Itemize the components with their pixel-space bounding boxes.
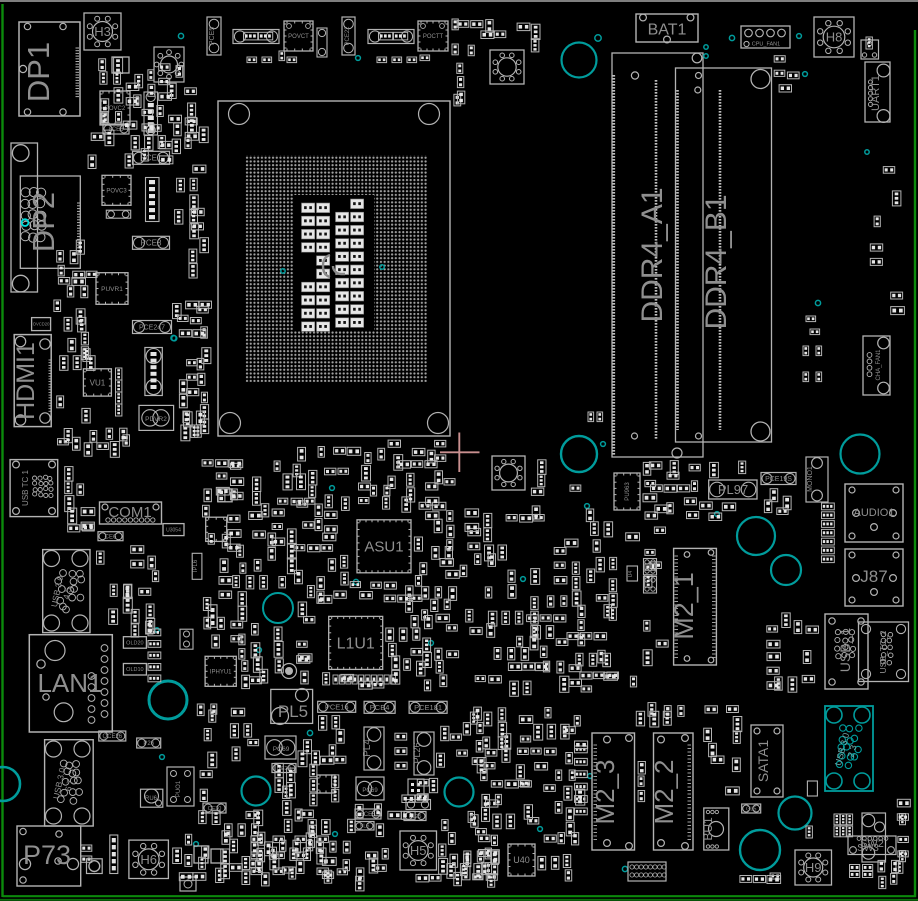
svg-text:H5: H5 xyxy=(410,843,427,858)
svg-text:M2_1: M2_1 xyxy=(669,572,699,640)
svg-text:AUDIO1: AUDIO1 xyxy=(854,507,895,519)
svg-text:USB_TC_2: USB_TC_2 xyxy=(878,630,888,673)
svg-text:PCE8: PCE8 xyxy=(141,239,162,248)
svg-text:VU1: VU1 xyxy=(90,378,106,387)
svg-text:PL97: PL97 xyxy=(718,482,748,497)
svg-text:L1U1: L1U1 xyxy=(337,636,375,653)
svg-text:COM1: COM1 xyxy=(108,504,151,521)
svg-text:PL26: PL26 xyxy=(412,742,422,763)
svg-text:PQ69: PQ69 xyxy=(362,788,378,794)
svg-text:PL5: PL5 xyxy=(278,702,308,721)
svg-text:CE6: CE6 xyxy=(105,534,117,540)
svg-text:H3: H3 xyxy=(94,24,111,39)
svg-text:H6: H6 xyxy=(140,852,157,867)
svg-text:DP2: DP2 xyxy=(26,192,61,252)
svg-text:PDVR2: PDVR2 xyxy=(145,416,167,423)
svg-text:USB_1: USB_1 xyxy=(837,628,853,673)
svg-text:DP1: DP1 xyxy=(21,42,56,102)
svg-text:HDMI1: HDMI1 xyxy=(12,342,40,420)
svg-text:PU963: PU963 xyxy=(625,482,631,501)
svg-text:U4: U4 xyxy=(628,571,634,578)
svg-text:PL4: PL4 xyxy=(362,739,373,757)
svg-text:POCTT: POCTT xyxy=(423,34,444,40)
svg-text:UART1: UART1 xyxy=(870,75,882,111)
svg-text:PCE4: PCE4 xyxy=(370,703,390,712)
svg-text:DDR4_B1: DDR4_B1 xyxy=(700,194,733,329)
svg-text:P73: P73 xyxy=(23,840,71,870)
svg-text:PQ69: PQ69 xyxy=(273,746,290,753)
svg-text:M2_3: M2_3 xyxy=(590,759,620,824)
svg-text:M2_2: M2_2 xyxy=(649,759,679,824)
svg-text:BAT1: BAT1 xyxy=(648,22,687,39)
svg-text:IPHYU1: IPHYU1 xyxy=(210,670,232,676)
svg-text:PCE247: PCE247 xyxy=(139,325,165,332)
svg-text:H9: H9 xyxy=(805,860,822,875)
svg-text:CHA_FAN1: CHA_FAN1 xyxy=(876,349,882,381)
svg-text:DDR4_A1: DDR4_A1 xyxy=(636,187,669,322)
svg-text:PCE19S: PCE19S xyxy=(765,476,792,483)
svg-text:SL6: SL6 xyxy=(360,824,370,830)
svg-text:PUVR1: PUVR1 xyxy=(101,286,123,293)
svg-text:H8: H8 xyxy=(826,30,843,45)
svg-text:CPU_FAN1: CPU_FAN1 xyxy=(752,42,780,48)
svg-text:GL5: GL5 xyxy=(746,807,756,813)
svg-text:OLD10: OLD10 xyxy=(126,667,143,673)
svg-text:LAN1: LAN1 xyxy=(37,668,102,698)
svg-text:PCE16: PCE16 xyxy=(325,703,349,712)
svg-text:PUO1: PUO1 xyxy=(176,780,182,797)
svg-text:POVCT: POVCT xyxy=(288,34,309,40)
svg-text:OLD20: OLD20 xyxy=(126,640,143,646)
svg-text:PCE181: PCE181 xyxy=(414,703,442,712)
svg-text:OVCD20: OVCD20 xyxy=(33,322,50,327)
svg-text:U3054: U3054 xyxy=(166,527,181,533)
svg-text:ASU1: ASU1 xyxy=(364,539,403,556)
svg-text:SATA1: SATA1 xyxy=(755,740,771,782)
svg-text:QCE26: QCE26 xyxy=(102,734,122,740)
svg-text:P26: P26 xyxy=(143,741,154,747)
svg-text:SW3: SW3 xyxy=(857,843,879,854)
svg-text:BU1: BU1 xyxy=(701,817,715,841)
svg-text:J87: J87 xyxy=(860,567,887,586)
svg-text:RU6: RU6 xyxy=(145,796,158,802)
svg-text:U40: U40 xyxy=(513,855,530,865)
svg-text:POVC3: POVC3 xyxy=(106,189,127,195)
svg-text:USB TC 1: USB TC 1 xyxy=(21,470,30,506)
svg-text:PCE5: PCE5 xyxy=(209,27,216,45)
svg-text:MONO1: MONO1 xyxy=(807,466,814,492)
svg-text:PCE22: PCE22 xyxy=(345,26,351,46)
svg-text:IPL6: IPL6 xyxy=(193,559,199,572)
